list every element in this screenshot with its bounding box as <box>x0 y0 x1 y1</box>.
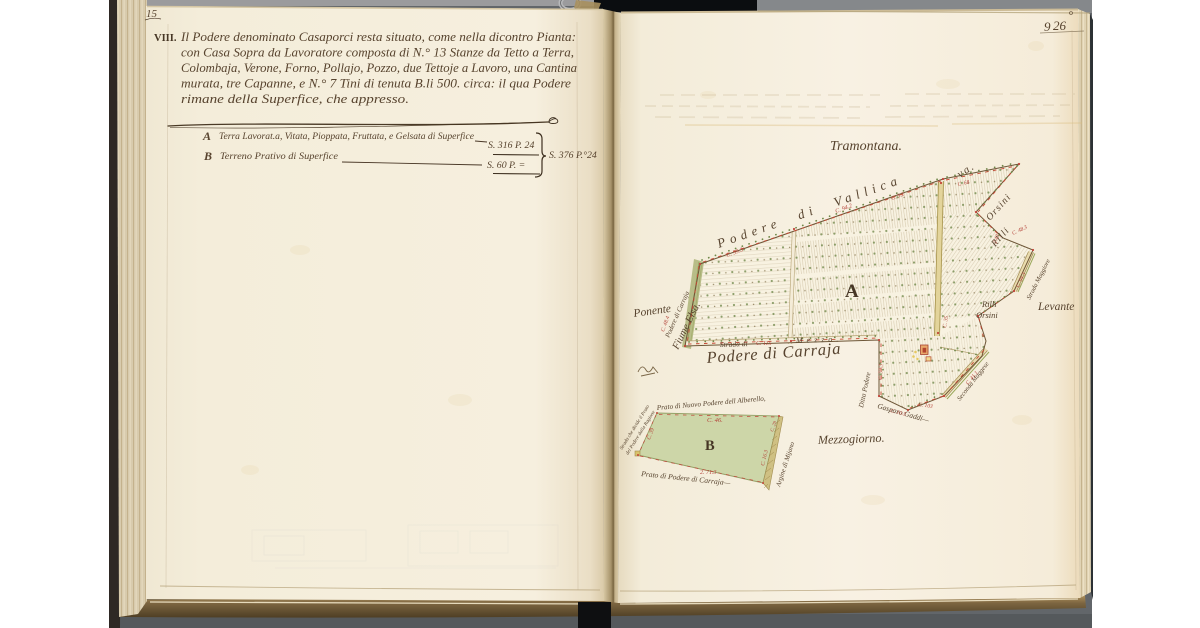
svg-text:S. 376 P.°24: S. 376 P.°24 <box>549 150 597 161</box>
svg-text:Terra Lavorat.a, Vitata, Piopp: Terra Lavorat.a, Vitata, Pioppata, Frutt… <box>219 131 475 142</box>
svg-text:B: B <box>705 438 715 454</box>
svg-text:Orsini: Orsini <box>976 310 998 320</box>
svg-text:Rilli: Rilli <box>981 299 997 309</box>
svg-text:C. 57.3: C. 57.3 <box>878 364 885 380</box>
svg-text:A: A <box>202 129 211 143</box>
svg-text:B: B <box>203 149 212 163</box>
svg-text:A: A <box>845 281 859 302</box>
svg-text:Colombaja, Verone, Forno, Poll: Colombaja, Verone, Forno, Pollajo, Pozzo… <box>181 61 577 75</box>
svg-text:S. 316 P. 24: S. 316 P. 24 <box>488 140 534 151</box>
svg-text:Il Podere denominato Casaporci: Il Podere denominato Casaporci resta sit… <box>180 30 576 44</box>
svg-text:2. 71.3: 2. 71.3 <box>700 470 717 476</box>
svg-text:VIII.: VIII. <box>154 33 177 44</box>
svg-text:9: 9 <box>1044 19 1051 34</box>
svg-text:S. 60 P. =: S. 60 P. = <box>487 160 525 171</box>
svg-text:Terreno Prativo di Superfice: Terreno Prativo di Superfice <box>220 151 339 162</box>
svg-text:Mezzogiorno.: Mezzogiorno. <box>817 431 885 447</box>
svg-text:Tramontana.: Tramontana. <box>830 139 902 154</box>
svg-text:murata, tre Capanne, e N.° 7 T: murata, tre Capanne, e N.° 7 Tini di ten… <box>181 77 571 91</box>
svg-text:Levante: Levante <box>1037 301 1074 313</box>
svg-text:rimane della Superfice, che ap: rimane della Superfice, che appresso. <box>181 92 409 106</box>
svg-text:C. 46.: C. 46. <box>707 417 723 424</box>
svg-text:con Casa Sopra da Lavoratore c: con Casa Sopra da Lavoratore composta di… <box>181 46 574 60</box>
svg-text:26: 26 <box>1053 18 1067 33</box>
